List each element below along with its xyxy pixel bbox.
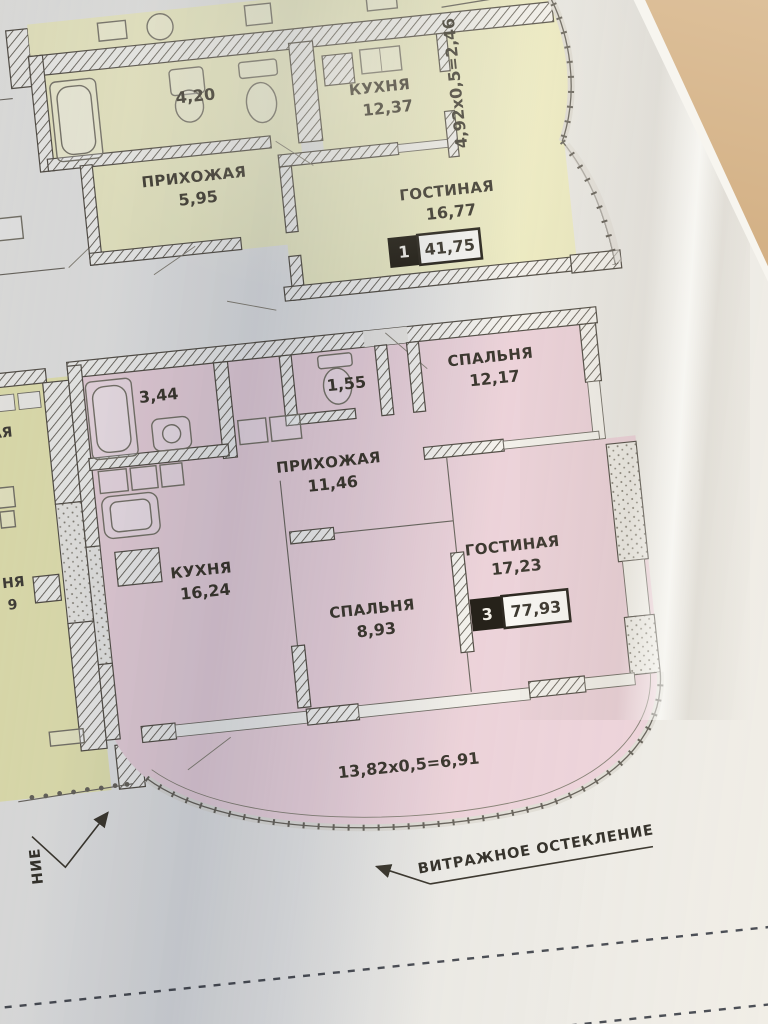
room-label-fragment: НЯ bbox=[1, 574, 25, 592]
unit-3: 3,44 1,55 СПАЛЬНЯ 12,17 ПРИХОЖАЯ 11,46 К… bbox=[67, 304, 674, 858]
room-area-fragment: 9 bbox=[7, 597, 18, 614]
room-label-fragment: АЯ bbox=[0, 424, 13, 442]
unit3-kitchen-sink-icon bbox=[101, 492, 161, 540]
photo-of-floor-plan: АЯ НЯ 9 bbox=[0, 0, 768, 1024]
vitrage-annotation: ВИТРАЖНОЕ ОСТЕКЛЕНИЕ bbox=[376, 820, 656, 892]
unit3-stove-icon bbox=[115, 548, 162, 586]
unit1-kitchen-sink-icon bbox=[360, 46, 402, 74]
unit3-bath-sink-icon bbox=[151, 416, 192, 452]
vitrage-label: ВИТРАЖНОЕ ОСТЕКЛЕНИЕ bbox=[417, 822, 655, 877]
unit-number: 3 bbox=[481, 604, 494, 624]
unit3-bathtub-icon bbox=[85, 378, 139, 460]
left-edge-annotation: НИЕ bbox=[24, 813, 114, 886]
floor-plan: АЯ НЯ 9 bbox=[0, 0, 768, 1024]
floor-plan-drawing: АЯ НЯ 9 bbox=[0, 0, 768, 1024]
section-dashed-lines bbox=[0, 916, 768, 1024]
unit-1: 4,20 КУХНЯ 12,37 ПРИХОЖАЯ 5,95 ГОСТИНАЯ … bbox=[25, 0, 622, 327]
vitrage-label-fragment: НИЕ bbox=[27, 847, 47, 885]
unit-number: 1 bbox=[397, 242, 410, 262]
unit1-bathtub-icon bbox=[49, 78, 103, 162]
